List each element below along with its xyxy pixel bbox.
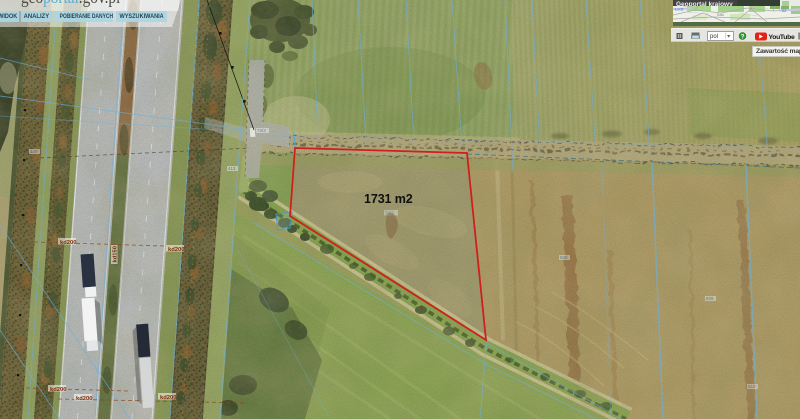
svg-text:508: 508 xyxy=(560,255,568,260)
svg-text:kd200: kd200 xyxy=(76,396,92,402)
svg-text:509: 509 xyxy=(706,296,714,301)
svg-text:kd200: kd200 xyxy=(168,247,184,253)
svg-text:73/3: 73/3 xyxy=(257,128,266,133)
svg-text:kd150: kd150 xyxy=(113,246,119,262)
svg-text:A2: A2 xyxy=(782,9,786,13)
svg-text:kd200: kd200 xyxy=(60,240,76,246)
svg-text:YouTube: YouTube xyxy=(769,34,795,41)
svg-text:1731 m2: 1731 m2 xyxy=(364,192,413,206)
svg-text:Łódź: Łódź xyxy=(675,7,684,12)
svg-text:120: 120 xyxy=(30,149,38,154)
svg-text:pol: pol xyxy=(710,34,718,40)
svg-text:kd200: kd200 xyxy=(50,387,66,393)
svg-text:Koło: Koło xyxy=(717,13,724,17)
svg-text:?: ? xyxy=(741,34,745,40)
svg-text:510: 510 xyxy=(748,384,756,389)
svg-text:413: 413 xyxy=(228,166,236,171)
svg-text:kd200: kd200 xyxy=(160,395,176,401)
